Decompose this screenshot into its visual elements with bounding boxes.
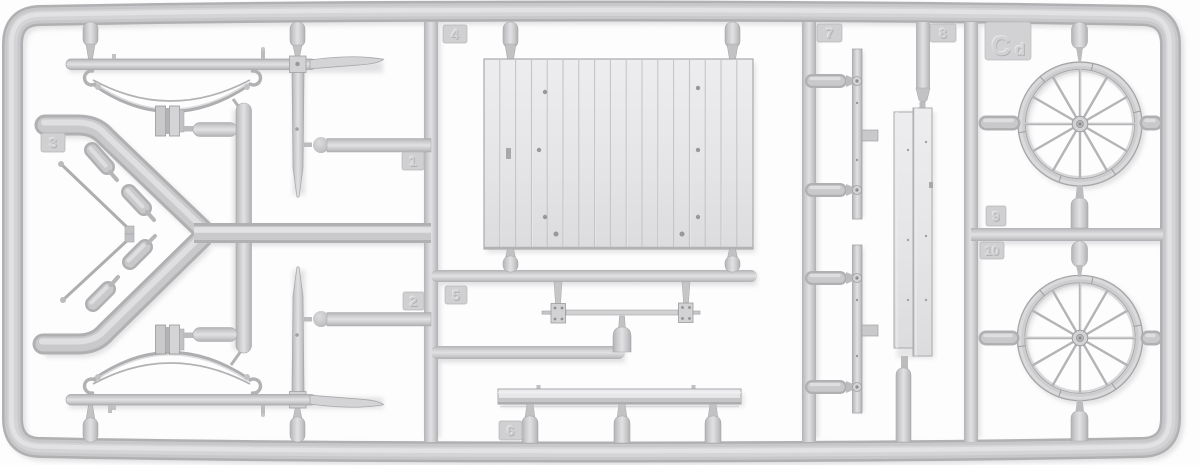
svg-text:6: 6 xyxy=(507,423,515,439)
svg-text:1: 1 xyxy=(409,153,417,169)
svg-text:d: d xyxy=(1015,40,1025,59)
svg-text:C: C xyxy=(991,31,1011,61)
svg-text:2: 2 xyxy=(410,293,418,309)
svg-text:9: 9 xyxy=(992,208,1000,224)
svg-text:8: 8 xyxy=(939,25,947,41)
svg-text:7: 7 xyxy=(826,25,834,41)
svg-text:10: 10 xyxy=(985,243,999,258)
svg-text:4: 4 xyxy=(451,26,459,42)
svg-text:5: 5 xyxy=(452,287,460,303)
svg-text:3: 3 xyxy=(49,135,57,151)
